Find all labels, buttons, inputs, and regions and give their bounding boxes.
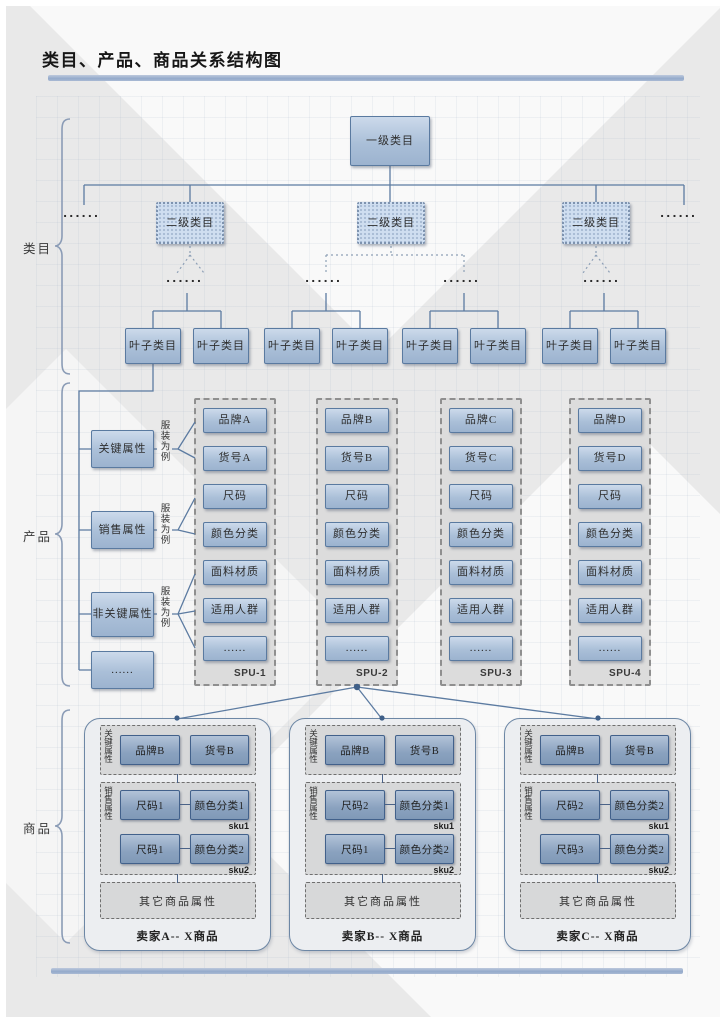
spu-attr-box: ......: [578, 636, 642, 661]
spu-attr-box: 尺码: [325, 484, 389, 509]
sku-link-line: [385, 848, 395, 849]
spu-attr-box: 尺码: [203, 484, 267, 509]
sku-link-line: [385, 804, 395, 805]
attr-group-ellipsis: ......: [91, 651, 154, 689]
ellipsis: ......: [443, 272, 480, 285]
sku-tag: sku2: [395, 865, 454, 875]
section-link-line: [177, 874, 178, 883]
ellipsis: ......: [583, 272, 620, 285]
section-link-line: [177, 774, 178, 783]
sku-color-box: 颜色分类2: [190, 834, 249, 864]
sku-size-box: 尺码1: [120, 834, 180, 864]
spu-attr-box: 颜色分类: [203, 522, 267, 547]
level2-category-node: 二级类目: [156, 202, 224, 244]
sku-size-box: 尺码3: [540, 834, 600, 864]
sku-color-box: 颜色分类2: [610, 834, 669, 864]
sku-size-box: 尺码1: [120, 790, 180, 820]
seller-card-c: 其它商品属性 关键属性 销售属性 品牌B 货号B 尺码2 颜色分类2 sku1 …: [504, 718, 691, 951]
spu-attr-box: 面料材质: [325, 560, 389, 585]
section-link-line: [597, 874, 598, 883]
seller-other-attr-section: 其它商品属性: [100, 882, 256, 919]
sku-size-box: 尺码1: [325, 834, 385, 864]
other-attr-label: 其它商品属性: [101, 883, 255, 918]
level2-category-node: 二级类目: [357, 202, 425, 244]
diagram-canvas: 类目、产品、商品关系结构图 类目 产品 商品 一级类目 二级类目: [0, 0, 720, 1017]
leaf-category-node: 叶子类目: [125, 328, 181, 364]
leaf-category-node: 叶子类目: [470, 328, 526, 364]
sales-attr-vertical-label: 销售属性: [104, 786, 113, 836]
spu-attr-box: 适用人群: [449, 598, 513, 623]
sku-color-box: 颜色分类1: [190, 790, 249, 820]
sku-tag: sku1: [395, 821, 454, 831]
section-label-category: 类目: [23, 238, 52, 257]
sku-tag: sku2: [190, 865, 249, 875]
spu-attr-box: 颜色分类: [578, 522, 642, 547]
spu-attr-box: 面料材质: [578, 560, 642, 585]
sku-size-box: 尺码2: [325, 790, 385, 820]
leaf-category-node: 叶子类目: [542, 328, 598, 364]
root-category-node: 一级类目: [350, 116, 430, 166]
attr-group-sales: 销售属性: [91, 511, 154, 549]
ellipsis: ......: [63, 207, 100, 220]
leaf-category-node: 叶子类目: [193, 328, 249, 364]
spu-attr-box: 适用人群: [578, 598, 642, 623]
key-attr-vertical-label: 关键属性: [524, 729, 533, 773]
spu-name: SPU-1: [234, 668, 266, 679]
spu-attr-box: 货号A: [203, 446, 267, 471]
sku-link-line: [600, 848, 610, 849]
seller-name: 卖家B-- X商品: [290, 928, 475, 944]
other-attr-label: 其它商品属性: [521, 883, 675, 918]
level2-category-node: 二级类目: [562, 202, 630, 244]
other-attr-label: 其它商品属性: [306, 883, 460, 918]
section-label-product: 产品: [23, 526, 52, 545]
spu-attr-box: ......: [203, 636, 267, 661]
sku-link-line: [600, 804, 610, 805]
spu-attr-box: 尺码: [449, 484, 513, 509]
item-no-box: 货号B: [610, 735, 669, 765]
seller-card-b: 其它商品属性 关键属性 销售属性 品牌B 货号B 尺码2 颜色分类1 sku1 …: [289, 718, 476, 951]
leaf-category-node: 叶子类目: [332, 328, 388, 364]
leaf-category-node: 叶子类目: [264, 328, 320, 364]
sku-link-line: [180, 804, 190, 805]
ellipsis: ......: [305, 272, 342, 285]
spu-attr-box: 面料材质: [203, 560, 267, 585]
brand-box: 品牌B: [120, 735, 180, 765]
spu-attr-box: 品牌A: [203, 408, 267, 433]
brand-box: 品牌B: [540, 735, 600, 765]
seller-card-a: 其它商品属性 关键属性 销售属性 品牌B 货号B 尺码1 颜色分类1 sku1 …: [84, 718, 271, 951]
sku-color-box: 颜色分类2: [610, 790, 669, 820]
section-link-line: [382, 774, 383, 783]
item-no-box: 货号B: [395, 735, 454, 765]
spu-attr-box: 适用人群: [325, 598, 389, 623]
key-attr-vertical-label: 关键属性: [309, 729, 318, 773]
attr-group-key: 关键属性: [91, 430, 154, 468]
sku-link-line: [180, 848, 190, 849]
spu-attr-box: 面料材质: [449, 560, 513, 585]
spu-attr-box: 货号B: [325, 446, 389, 471]
spu-attr-box: 品牌B: [325, 408, 389, 433]
key-attr-vertical-label: 关键属性: [104, 729, 113, 773]
page-title: 类目、产品、商品关系结构图: [42, 46, 283, 71]
seller-other-attr-section: 其它商品属性: [520, 882, 676, 919]
sku-color-box: 颜色分类1: [395, 790, 454, 820]
ellipsis: ......: [660, 207, 697, 220]
spu-attr-box: 适用人群: [203, 598, 267, 623]
sku-size-box: 尺码2: [540, 790, 600, 820]
attr-group-nonkey: 非关键属性: [91, 592, 154, 637]
spu-attr-box: 货号D: [578, 446, 642, 471]
spu-name: SPU-3: [480, 668, 512, 679]
brand-box: 品牌B: [325, 735, 385, 765]
sku-tag: sku1: [610, 821, 669, 831]
example-note: 服装为例: [158, 586, 168, 646]
example-note: 服装为例: [158, 420, 168, 480]
sku-tag: sku2: [610, 865, 669, 875]
sales-attr-vertical-label: 销售属性: [524, 786, 533, 836]
ellipsis: ......: [166, 272, 203, 285]
sales-attr-vertical-label: 销售属性: [309, 786, 318, 836]
leaf-category-node: 叶子类目: [610, 328, 666, 364]
spu-name: SPU-2: [356, 668, 388, 679]
sku-tag: sku1: [190, 821, 249, 831]
seller-other-attr-section: 其它商品属性: [305, 882, 461, 919]
spu-attr-box: 颜色分类: [449, 522, 513, 547]
example-note: 服装为例: [158, 503, 168, 563]
spu-attr-box: 尺码: [578, 484, 642, 509]
seller-name: 卖家C-- X商品: [505, 928, 690, 944]
spu-attr-box: ......: [449, 636, 513, 661]
spu-attr-box: 品牌D: [578, 408, 642, 433]
section-link-line: [597, 774, 598, 783]
section-label-commodity: 商品: [23, 818, 52, 837]
sku-color-box: 颜色分类2: [395, 834, 454, 864]
spu-name: SPU-4: [609, 668, 641, 679]
spu-attr-box: 货号C: [449, 446, 513, 471]
spu-attr-box: 颜色分类: [325, 522, 389, 547]
footer-bar: [51, 968, 683, 974]
section-link-line: [382, 874, 383, 883]
spu-attr-box: 品牌C: [449, 408, 513, 433]
leaf-category-node: 叶子类目: [402, 328, 458, 364]
item-no-box: 货号B: [190, 735, 249, 765]
spu-attr-box: ......: [325, 636, 389, 661]
title-underline-bar: [48, 75, 684, 81]
seller-name: 卖家A-- X商品: [85, 928, 270, 944]
